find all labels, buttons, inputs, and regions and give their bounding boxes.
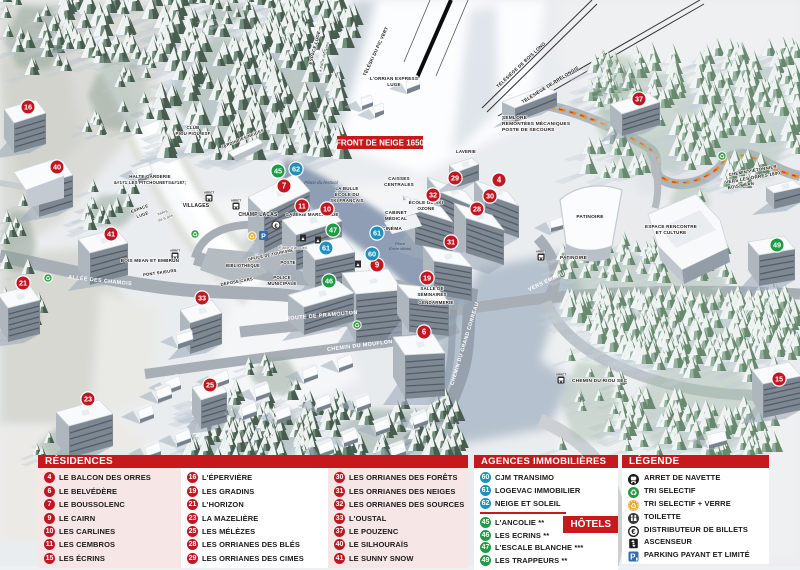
svg-text:46: 46: [325, 277, 333, 286]
svg-text:OZONE: OZONE: [417, 206, 434, 211]
svg-text:▲: ▲: [316, 238, 321, 244]
svg-text:ET CULTURE: ET CULTURE: [656, 230, 687, 235]
svg-text:ARRET: ARRET: [536, 249, 547, 253]
svg-text:BIBLIOTHÈQUE: BIBLIOTHÈQUE: [226, 263, 260, 268]
svg-text:6: 6: [422, 328, 427, 337]
svg-text:Place du festival: Place du festival: [304, 180, 338, 185]
svg-text:16: 16: [24, 103, 32, 112]
svg-text:11: 11: [298, 202, 306, 211]
svg-text:CABINET: CABINET: [385, 210, 407, 215]
svg-text:SEMLORE: SEMLORE: [502, 115, 528, 121]
svg-text:7: 7: [282, 182, 286, 191]
svg-text:19: 19: [423, 274, 431, 283]
svg-text:P: P: [261, 234, 266, 241]
svg-text:♻: ♻: [630, 501, 637, 510]
svg-text:♻: ♻: [45, 275, 51, 282]
svg-text:SALLE DE: SALLE DE: [420, 286, 443, 291]
svg-text:PIOU PIOU ESF: PIOU PIOU ESF: [175, 131, 210, 136]
svg-text:47: 47: [329, 226, 337, 235]
svg-text:L'ORRIAN EXPRESS: L'ORRIAN EXPRESS: [370, 76, 418, 81]
svg-text:61: 61: [322, 244, 330, 253]
svg-text:61: 61: [373, 229, 381, 238]
svg-text:LAVERIE: LAVERIE: [456, 149, 476, 154]
svg-text:25: 25: [206, 381, 214, 390]
svg-text:10: 10: [323, 205, 331, 214]
svg-text:BOIS MEAN ET EMBRUN: BOIS MEAN ET EMBRUN: [121, 258, 180, 263]
svg-text:SKI FRANÇAIS: SKI FRANÇAIS: [330, 198, 364, 203]
svg-text:CHEMIN DU RIOU SEC: CHEMIN DU RIOU SEC: [572, 378, 628, 384]
svg-text:LA BULLE: LA BULLE: [335, 186, 358, 191]
svg-text:MUNICIPALE: MUNICIPALE: [268, 281, 297, 286]
svg-text:♻: ♻: [630, 487, 638, 497]
svg-text:CHAMP LACAS: CHAMP LACAS: [238, 212, 278, 218]
svg-text:49: 49: [773, 241, 781, 250]
svg-text:♻: ♻: [192, 231, 198, 238]
svg-text:31: 31: [447, 238, 455, 247]
svg-text:SÉMINAIRES: SÉMINAIRES: [417, 292, 446, 297]
svg-text:CLUB: CLUB: [187, 125, 200, 130]
svg-text:30: 30: [486, 192, 494, 201]
svg-text:ARRET: ARRET: [231, 198, 242, 202]
svg-text:CENTRALES: CENTRALES: [384, 182, 414, 187]
svg-text:9: 9: [375, 261, 380, 270]
svg-text:Place d'accueil: Place d'accueil: [279, 246, 307, 250]
svg-text:MÉDICAL: MÉDICAL: [385, 214, 407, 221]
svg-text:29: 29: [451, 174, 459, 183]
svg-text:28: 28: [473, 205, 481, 214]
svg-text:62: 62: [292, 165, 300, 174]
svg-text:ESPACE RENCONTRE: ESPACE RENCONTRE: [645, 224, 697, 229]
svg-text:32: 32: [429, 191, 437, 200]
svg-text:FRONT DE NEIGE 1650: FRONT DE NEIGE 1650: [336, 139, 425, 148]
svg-text:♻: ♻: [719, 153, 725, 160]
svg-text:&#171;LES PITCHOUNETS&#187;: &#171;LES PITCHOUNETS&#187;: [114, 180, 186, 185]
svg-text:Émile Mödol: Émile Mödol: [389, 246, 411, 251]
svg-text:PATINOIRE: PATINOIRE: [576, 214, 604, 220]
svg-text:♻: ♻: [354, 322, 360, 329]
svg-text:ARRET: ARRET: [204, 190, 215, 194]
svg-text:40: 40: [53, 163, 61, 172]
svg-text:CAISSES: CAISSES: [388, 176, 410, 181]
svg-text:P: P: [630, 553, 636, 562]
svg-text:POSTE DE SECOURS: POSTE DE SECOURS: [502, 127, 555, 133]
svg-text:♻: ♻: [249, 233, 255, 240]
svg-text:GENDARMERIE: GENDARMERIE: [418, 300, 453, 305]
svg-text:VILLAGES: VILLAGES: [183, 203, 210, 209]
svg-text:POLICE: POLICE: [273, 275, 291, 280]
svg-text:ÉCOLE DU: ÉCOLE DU: [335, 192, 359, 197]
svg-text:4: 4: [497, 176, 502, 185]
svg-text:21: 21: [19, 279, 27, 288]
svg-text:▲: ▲: [356, 262, 361, 268]
svg-text:LUGE: LUGE: [387, 82, 401, 87]
svg-text:60: 60: [368, 250, 376, 259]
svg-text:15: 15: [775, 375, 783, 384]
svg-text:▲: ▲: [301, 236, 306, 242]
svg-text:45: 45: [274, 167, 282, 176]
svg-text:ARRET: ARRET: [556, 372, 567, 376]
svg-text:POSTE: POSTE: [280, 260, 295, 265]
svg-text:HALTE GARDERIE: HALTE GARDERIE: [129, 174, 171, 179]
svg-text:37: 37: [635, 95, 643, 104]
svg-text:ARRET: ARRET: [170, 248, 181, 252]
svg-text:23: 23: [84, 395, 92, 404]
svg-text:41: 41: [107, 230, 115, 239]
svg-text:PATINOIRE: PATINOIRE: [560, 255, 588, 261]
svg-text:33: 33: [198, 294, 206, 303]
